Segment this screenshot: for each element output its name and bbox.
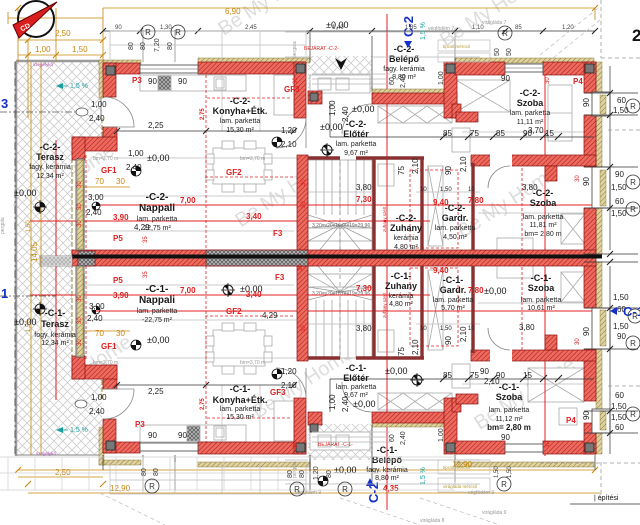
svg-text:75: 75 — [397, 347, 406, 356]
svg-text:Szoba: Szoba — [528, 283, 555, 293]
svg-text:-C-1-: -C-1- — [377, 445, 398, 455]
svg-text:F3: F3 — [275, 273, 285, 282]
svg-text:GF3: GF3 — [270, 388, 286, 397]
svg-text:30: 30 — [77, 203, 83, 210]
svg-text:15: 15 — [545, 129, 554, 138]
svg-text:Gardr.: Gardr. — [442, 213, 469, 223]
svg-text:60: 60 — [617, 96, 626, 105]
svg-text:80: 80 — [153, 468, 160, 476]
svg-text:1,85: 1,85 — [405, 25, 417, 31]
svg-text:3,00: 3,00 — [88, 193, 104, 202]
svg-text:R: R — [630, 102, 636, 111]
svg-text:30: 30 — [77, 220, 83, 227]
svg-text:-C-2-: -C-2- — [40, 142, 61, 152]
svg-text:35: 35 — [143, 236, 149, 243]
svg-text:30: 30 — [575, 338, 581, 345]
svg-text:30: 30 — [298, 264, 304, 271]
svg-text:1,50: 1,50 — [440, 187, 452, 193]
svg-text:±0,00: ±0,00 — [14, 188, 36, 198]
svg-text:30: 30 — [116, 329, 125, 338]
svg-text:5,70 m²: 5,70 m² — [441, 305, 465, 312]
svg-text:Zuhany: Zuhany — [385, 281, 417, 291]
svg-text:kerámia: kerámia — [389, 293, 414, 300]
svg-text:szegélykő: szegélykő — [33, 62, 54, 67]
svg-text:30: 30 — [301, 201, 307, 208]
svg-text:3,90: 3,90 — [113, 291, 129, 300]
svg-text:90: 90 — [501, 433, 510, 442]
svg-text:14,05: 14,05 — [30, 241, 39, 262]
svg-text:kerámia: kerámia — [394, 235, 419, 242]
svg-text:P3: P3 — [135, 420, 145, 429]
svg-text:bm=3,70 m: bm=3,70 m — [240, 360, 265, 366]
svg-text:90: 90 — [444, 166, 453, 175]
svg-text:1,5 %: 1,5 % — [70, 83, 88, 90]
svg-text:2,25: 2,25 — [148, 387, 164, 396]
svg-text:-C-2-: -C-2- — [146, 192, 169, 203]
svg-text:lam. parketta: lam. parketta — [510, 110, 551, 117]
svg-text:bm= 2,80 m: bm= 2,80 m — [524, 231, 561, 238]
svg-text:4,35: 4,35 — [383, 484, 399, 493]
svg-text:P3: P3 — [132, 76, 142, 85]
svg-text:P5: P5 — [113, 276, 123, 285]
svg-text:2,10: 2,10 — [484, 377, 500, 386]
svg-text:1,50: 1,50 — [611, 413, 627, 422]
svg-text:pergola: pergola — [292, 41, 298, 58]
svg-text:±0,00: ±0,00 — [320, 122, 342, 132]
svg-text:30: 30 — [77, 317, 83, 324]
svg-text:2,10: 2,10 — [411, 158, 420, 174]
svg-text:3,40: 3,40 — [246, 212, 262, 221]
svg-text:R: R — [294, 485, 300, 494]
svg-text:2,75: 2,75 — [200, 398, 206, 410]
svg-text:12,34 m²: 12,34 m² — [41, 340, 69, 347]
svg-text:pergola: pergola — [0, 217, 6, 234]
svg-text:90: 90 — [615, 170, 624, 179]
svg-text:±0,00: ±0,00 — [484, 286, 506, 296]
svg-text:-22,75 m²: -22,75 m² — [142, 317, 173, 324]
svg-text:30: 30 — [301, 325, 307, 332]
svg-text:80: 80 — [299, 470, 306, 478]
svg-text:-C-1-: -C-1- — [346, 363, 367, 373]
svg-text:2,40: 2,40 — [87, 314, 103, 323]
svg-text:80: 80 — [287, 470, 294, 478]
svg-text:1,5 %: 1,5 % — [420, 467, 427, 485]
svg-text:3,70: 3,70 — [528, 126, 544, 135]
svg-text:80: 80 — [140, 42, 147, 50]
svg-text:R: R — [149, 482, 155, 491]
svg-text:lam. parketta: lam. parketta — [336, 384, 377, 391]
svg-text:Belépő: Belépő — [389, 54, 420, 64]
svg-text:bm=3,70 m: bm=3,70 m — [93, 360, 118, 366]
svg-text:10: 10 — [420, 326, 427, 332]
svg-text:2,10: 2,10 — [281, 140, 297, 149]
svg-text:szegélykő: szegélykő — [36, 451, 57, 456]
svg-text:±0,00: ±0,00 — [334, 465, 356, 475]
svg-text:P5: P5 — [113, 234, 123, 243]
svg-text:1,20: 1,20 — [313, 466, 320, 480]
svg-text:2,45: 2,45 — [245, 25, 257, 31]
svg-text:11,12 m²: 11,12 m² — [495, 416, 523, 423]
svg-text:GF1: GF1 — [101, 342, 117, 351]
svg-text:bm=3,70 m: bm=3,70 m — [240, 156, 265, 162]
svg-text:Gardr.: Gardr. — [440, 285, 467, 295]
svg-text:fagy. kerámia: fagy. kerámia — [29, 164, 71, 171]
svg-text:2,10: 2,10 — [459, 156, 468, 172]
svg-text:R: R — [632, 312, 638, 321]
svg-text:85: 85 — [515, 25, 522, 31]
svg-text:Nappali: Nappali — [139, 295, 175, 306]
svg-text:1,40: 1,40 — [332, 25, 344, 31]
svg-text:R: R — [175, 28, 181, 37]
svg-text:90: 90 — [501, 74, 510, 83]
svg-text:±0,00: ±0,00 — [353, 399, 375, 409]
svg-text:virágláda 7: virágláda 7 — [482, 20, 507, 26]
svg-text:1,50: 1,50 — [611, 183, 627, 192]
svg-text:12,90: 12,90 — [110, 484, 131, 493]
svg-text:1,00: 1,00 — [91, 393, 107, 402]
svg-text:90: 90 — [178, 77, 187, 86]
svg-text:3,80: 3,80 — [356, 183, 372, 192]
svg-text:30: 30 — [77, 339, 83, 346]
svg-text:2,50: 2,50 — [55, 468, 71, 477]
svg-text:3,80: 3,80 — [356, 324, 372, 333]
svg-text:R: R — [630, 410, 636, 419]
svg-text:1,50: 1,50 — [26, 220, 32, 232]
svg-text:10,61 m²: 10,61 m² — [527, 305, 555, 312]
svg-text:Előtér: Előtér — [343, 129, 369, 139]
svg-text:±0,00: ±0,00 — [385, 366, 407, 376]
svg-text:4,29: 4,29 — [134, 223, 150, 232]
svg-text:50: 50 — [494, 48, 501, 56]
svg-text:F3: F3 — [273, 229, 283, 238]
svg-text:végfödém 9: végfödém 9 — [468, 490, 494, 496]
svg-text:90: 90 — [582, 411, 591, 420]
svg-text:15: 15 — [523, 371, 532, 380]
svg-text:Konyha+Étk.: Konyha+Étk. — [213, 106, 268, 116]
svg-text:11,81 m²: 11,81 m² — [529, 222, 557, 229]
svg-text:60: 60 — [389, 77, 396, 85]
svg-text:bm= 2,80 m: bm= 2,80 m — [487, 423, 531, 432]
svg-text:tipcsil mércsil: tipcsil mércsil — [443, 44, 470, 49]
svg-text:R: R — [630, 339, 636, 348]
svg-text:Konyha+Étk.: Konyha+Étk. — [213, 395, 268, 405]
svg-text:1: 1 — [1, 286, 8, 301]
svg-text:35: 35 — [143, 271, 149, 278]
svg-text:4,80 m²: 4,80 m² — [394, 244, 418, 251]
svg-text:4,80 m²: 4,80 m² — [389, 301, 413, 308]
svg-text:80: 80 — [326, 470, 333, 478]
svg-text:3,80: 3,80 — [522, 183, 538, 192]
svg-text:1,50: 1,50 — [26, 320, 32, 332]
svg-text:2,40: 2,40 — [89, 407, 105, 416]
svg-text:2,40: 2,40 — [400, 74, 407, 88]
svg-text:7,20: 7,20 — [154, 38, 161, 52]
svg-text:2,40: 2,40 — [400, 431, 407, 445]
svg-text:90: 90 — [582, 327, 591, 336]
svg-text:Előtér: Előtér — [343, 373, 369, 383]
svg-text:lam. parketta: lam. parketta — [220, 118, 261, 125]
svg-text:lam. parketta: lam. parketta — [137, 308, 178, 315]
svg-text:30: 30 — [545, 77, 551, 84]
svg-text:75: 75 — [397, 166, 406, 175]
svg-text:2,10: 2,10 — [411, 339, 420, 355]
svg-text:-C-2-: -C-2- — [396, 213, 417, 223]
svg-text:1,50: 1,50 — [613, 322, 629, 331]
svg-text:9,67 m²: 9,67 m² — [344, 150, 368, 157]
svg-text:90: 90 — [480, 367, 489, 376]
svg-text:7,80: 7,80 — [468, 196, 484, 205]
svg-text:10: 10 — [468, 187, 475, 193]
svg-text:7,00: 7,00 — [180, 196, 196, 205]
svg-text:90: 90 — [178, 431, 187, 440]
svg-text:7,30: 7,30 — [356, 284, 372, 293]
svg-text:-C-1-: -C-1- — [443, 275, 464, 285]
svg-text:12,34 m²: 12,34 m² — [36, 173, 64, 180]
svg-text:60: 60 — [615, 423, 624, 432]
svg-text:1,00: 1,00 — [438, 71, 445, 85]
svg-text:70: 70 — [95, 329, 104, 338]
svg-text:±0,00: ±0,00 — [147, 153, 169, 163]
svg-text:Nappali: Nappali — [139, 203, 175, 214]
svg-text:30: 30 — [77, 181, 83, 188]
svg-text:P4: P4 — [566, 416, 576, 425]
svg-text:lam. parketta: lam. parketta — [220, 406, 261, 413]
svg-text:3,80: 3,80 — [519, 323, 535, 332]
svg-text:1,50: 1,50 — [613, 106, 629, 115]
svg-text:±0,00: ±0,00 — [352, 104, 374, 114]
svg-text:zuhany szett: zuhany szett — [382, 206, 387, 232]
svg-text:fagy. kerámia: fagy. kerámia — [383, 66, 425, 73]
svg-text:Szoba: Szoba — [517, 98, 544, 108]
svg-text:1,20: 1,20 — [562, 25, 574, 31]
svg-text:70: 70 — [95, 177, 104, 186]
svg-text:GF1: GF1 — [101, 166, 117, 175]
svg-text:| építési: | építési — [594, 495, 619, 502]
svg-text:lam. parketta: lam. parketta — [521, 297, 562, 304]
svg-text:-C-2-: -C-2- — [520, 88, 541, 98]
svg-text:virágláda 8: virágláda 8 — [420, 518, 445, 524]
svg-text:lam. parketta: lam. parketta — [489, 407, 530, 414]
svg-text:90: 90 — [444, 336, 453, 345]
svg-text:fogy. kerámia: fogy. kerámia — [34, 332, 76, 339]
svg-text:9,40: 9,40 — [433, 266, 449, 275]
svg-text:1,10: 1,10 — [472, 25, 484, 31]
svg-text:90: 90 — [115, 25, 122, 31]
svg-text:80: 80 — [141, 468, 148, 476]
svg-text:3,40: 3,40 — [246, 290, 262, 299]
svg-text:75: 75 — [470, 129, 479, 138]
svg-text:lam. parketta: lam. parketta — [433, 297, 474, 304]
svg-text:1,00: 1,00 — [35, 45, 51, 54]
svg-text:60: 60 — [389, 434, 396, 442]
svg-text:1,20: 1,20 — [281, 367, 297, 376]
svg-text:1,00: 1,00 — [328, 100, 337, 116]
svg-text:3,20=v20x16,00/19=29,96: 3,20=v20x16,00/19=29,96 — [312, 223, 370, 229]
svg-text:2,40: 2,40 — [341, 106, 350, 122]
svg-text:75: 75 — [470, 371, 479, 380]
svg-text:±0,00: ±0,00 — [147, 335, 169, 345]
svg-text:15,30 m²: 15,30 m² — [226, 414, 254, 421]
svg-text:R: R — [342, 485, 348, 494]
svg-text:2,10: 2,10 — [459, 326, 468, 342]
svg-text:-C-1-: -C-1- — [499, 382, 520, 392]
svg-text:1,20: 1,20 — [281, 126, 297, 135]
svg-text:30: 30 — [575, 175, 581, 182]
svg-text:lam. parketta: lam. parketta — [523, 214, 564, 221]
svg-text:3: 3 — [1, 96, 8, 111]
svg-text:R: R — [502, 29, 508, 38]
svg-text:2,75: 2,75 — [200, 108, 206, 120]
svg-text:30: 30 — [116, 177, 125, 186]
svg-text:1,00: 1,00 — [328, 394, 337, 410]
svg-text:GF2: GF2 — [226, 307, 242, 316]
svg-text:4,29: 4,29 — [262, 311, 278, 320]
svg-text:tipcsil mércsil: tipcsil mércsil — [443, 465, 470, 470]
svg-text:90: 90 — [582, 177, 591, 186]
svg-text:11,11 m²: 11,11 m² — [517, 119, 544, 126]
svg-text:80: 80 — [128, 42, 135, 50]
svg-text:85: 85 — [443, 129, 452, 138]
svg-text:R: R — [145, 28, 151, 37]
svg-text:2: 2 — [632, 26, 640, 45]
svg-text:15,30 m²: 15,30 m² — [226, 127, 254, 134]
svg-text:60: 60 — [615, 197, 624, 206]
svg-text:1,50: 1,50 — [507, 466, 513, 478]
svg-text:R: R — [630, 178, 636, 187]
svg-text:90: 90 — [148, 77, 157, 86]
svg-text:2,50: 2,50 — [55, 29, 71, 38]
svg-text:lam. parketta: lam. parketta — [137, 216, 178, 223]
svg-text:1,50: 1,50 — [611, 402, 627, 411]
svg-text:80: 80 — [167, 42, 174, 50]
svg-text:60: 60 — [615, 391, 624, 400]
svg-text:30: 30 — [293, 441, 299, 448]
svg-text:90: 90 — [582, 98, 591, 107]
svg-text:-C-1-: -C-1- — [391, 271, 412, 281]
svg-text:lam. parketta: lam. parketta — [435, 225, 476, 232]
svg-text:-C-2-: -C-2- — [230, 96, 251, 106]
svg-text:50: 50 — [506, 48, 513, 56]
svg-text:4,50 m²: 4,50 m² — [443, 234, 467, 241]
svg-text:1,30: 1,30 — [160, 25, 172, 31]
svg-text:9,40: 9,40 — [433, 198, 449, 207]
svg-text:virágláda 9: virágláda 9 — [482, 510, 507, 516]
svg-text:bm=3,70 m: bm=3,70 m — [93, 156, 118, 162]
svg-text:-C-1-: -C-1- — [146, 284, 169, 295]
svg-text:30: 30 — [77, 295, 83, 302]
svg-text:P4: P4 — [573, 77, 583, 86]
svg-text:10: 10 — [468, 326, 475, 332]
svg-text:R: R — [630, 205, 636, 214]
svg-text:végfödém 7: végfödém 7 — [428, 26, 454, 32]
svg-text:R: R — [501, 480, 507, 489]
svg-text:1,00: 1,00 — [128, 149, 144, 158]
svg-text:7,00: 7,00 — [180, 286, 196, 295]
svg-text:lam. parketta: lam. parketta — [336, 141, 377, 148]
svg-text:30: 30 — [293, 77, 299, 84]
svg-text:Szoba: Szoba — [496, 392, 523, 402]
svg-text:2,25: 2,25 — [148, 121, 164, 130]
svg-text:90: 90 — [148, 431, 157, 440]
svg-text:Szoba: Szoba — [530, 198, 557, 208]
svg-text:BEJÁRAT -C-2-: BEJÁRAT -C-2- — [304, 45, 339, 52]
svg-text:1,00: 1,00 — [438, 428, 445, 442]
svg-text:-C-1-: -C-1- — [230, 384, 251, 394]
svg-text:1,00: 1,00 — [91, 100, 107, 109]
svg-text:1,50: 1,50 — [613, 293, 629, 302]
svg-text:-C-1-: -C-1- — [45, 308, 66, 318]
svg-text:1,50: 1,50 — [611, 209, 627, 218]
svg-text:8,80 m²: 8,80 m² — [375, 475, 399, 482]
svg-text:1,50: 1,50 — [72, 45, 88, 54]
svg-text:GF2: GF2 — [226, 168, 242, 177]
svg-text:30: 30 — [301, 179, 307, 186]
svg-text:2,40: 2,40 — [341, 396, 350, 412]
svg-text:1,50: 1,50 — [440, 326, 452, 332]
svg-text:7,30: 7,30 — [356, 195, 372, 204]
svg-text:Zuhany: Zuhany — [390, 223, 422, 233]
svg-text:Terasz: Terasz — [36, 152, 64, 162]
svg-text:30: 30 — [545, 441, 551, 448]
svg-text:1,5 %: 1,5 % — [70, 427, 88, 434]
svg-text:1,50: 1,50 — [494, 466, 500, 478]
svg-text:-C-2-: -C-2- — [394, 44, 415, 54]
svg-text:2,40: 2,40 — [89, 114, 105, 123]
svg-text:6,90: 6,90 — [225, 7, 241, 16]
svg-text:virágláda mércsil: virágláda mércsil — [443, 484, 477, 489]
svg-text:Terasz: Terasz — [41, 319, 69, 329]
svg-text:1,5 %: 1,5 % — [420, 22, 427, 40]
svg-text:7,80: 7,80 — [468, 286, 484, 295]
svg-text:85: 85 — [496, 129, 505, 138]
svg-text:85: 85 — [443, 371, 452, 380]
svg-text:GF3: GF3 — [284, 85, 300, 94]
svg-text:3,90: 3,90 — [113, 213, 129, 222]
svg-text:10: 10 — [420, 187, 427, 193]
svg-text:zuhany szett: zuhany szett — [382, 292, 387, 318]
svg-text:90: 90 — [617, 332, 626, 341]
svg-text:-C-1-: -C-1- — [531, 273, 552, 283]
